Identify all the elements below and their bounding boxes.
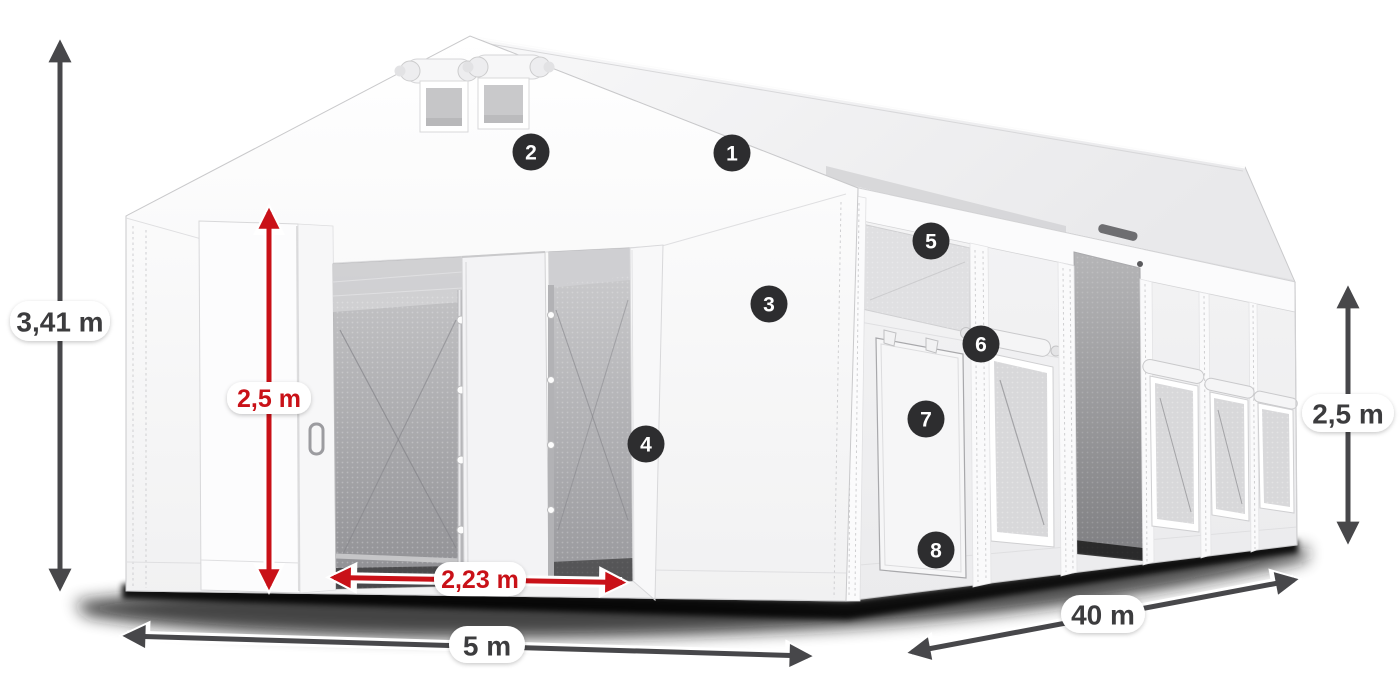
door-height-label: 2,5 m [227, 382, 311, 414]
side-window-4 [1253, 390, 1298, 513]
side-door-opening [1074, 223, 1143, 561]
callout-6: 6 [963, 326, 1000, 363]
callout-6-number: 6 [975, 334, 987, 357]
side-height-label: 2,5 m [1302, 394, 1394, 432]
front-door-opening-right [548, 248, 634, 584]
length-label: 40 m [1061, 595, 1145, 633]
front-door-middle-panel [462, 252, 549, 586]
tent-dimension-diagram: 3,41 m 2,5 m 2,23 m 5 m 40 m 2,5 m 1 2 3… [0, 0, 1400, 700]
callout-4-number: 4 [640, 434, 652, 457]
callout-7: 7 [908, 401, 945, 438]
callout-1-number: 1 [726, 143, 738, 166]
tent-illustration [126, 36, 1298, 601]
total-height-value: 3,41 m [16, 307, 103, 338]
gable-width-value: 5 m [463, 631, 511, 662]
length-value: 40 m [1071, 600, 1135, 631]
callout-7-number: 7 [920, 409, 932, 432]
callout-8-number: 8 [930, 540, 942, 563]
door-width-value: 2,23 m [441, 566, 519, 594]
callout-8: 8 [918, 532, 955, 569]
callout-2-number: 2 [525, 142, 537, 165]
diagram-stage: 3,41 m 2,5 m 2,23 m 5 m 40 m 2,5 m 1 2 3… [0, 0, 1400, 700]
callout-1: 1 [714, 135, 751, 172]
total-height-label: 3,41 m [10, 301, 110, 341]
door-tab [884, 330, 896, 346]
callout-3-number: 3 [763, 294, 775, 317]
front-door-opening-left [333, 257, 465, 589]
callout-3: 3 [751, 286, 788, 323]
callout-5: 5 [913, 223, 950, 260]
callout-4: 4 [628, 426, 665, 463]
callout-5-number: 5 [925, 231, 937, 254]
gable-width-label: 5 m [449, 626, 525, 663]
side-height-value: 2,5 m [1312, 399, 1384, 430]
door-tab [926, 338, 938, 353]
door-height-value: 2,5 m [237, 385, 301, 413]
callout-2: 2 [513, 134, 550, 171]
door-width-label: 2,23 m [434, 562, 526, 596]
